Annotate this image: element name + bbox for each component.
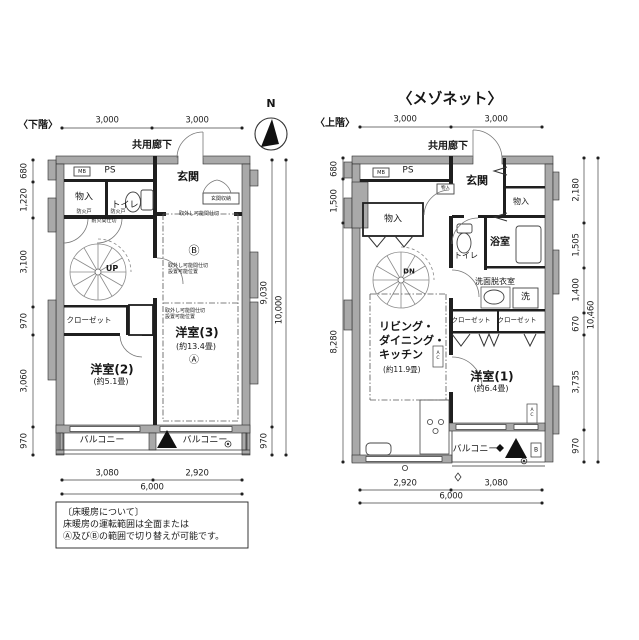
lower-heading: 〈下階〉 (18, 120, 58, 133)
lower-dim-top-2: 3,000 (185, 116, 208, 127)
lower-mark-a: Ⓐ (189, 355, 199, 368)
note-line-3: Ⓐ及びⒷの範囲で切り替えが可能です。 (63, 529, 224, 542)
upper-balcony-label: バルコニー (453, 444, 498, 455)
upper-room1-label: 洋室(1) (470, 370, 513, 385)
upper-dim-left-1: 680 (330, 161, 341, 177)
lower-closet-label: クローゼット (67, 315, 112, 324)
compass-north-label: N (266, 97, 275, 111)
upper-dn-label: DN (403, 268, 415, 277)
upper-mb-label: MB (377, 169, 385, 175)
lower-dim-top-1: 3,000 (95, 116, 118, 127)
upper-dim-right-5: 3,735 (572, 370, 583, 393)
lower-removable-note-2: 取外し可能間仕切 設置可能位置 (165, 308, 205, 321)
lower-dim-right-3: 10,000 (275, 296, 286, 325)
lower-dim-left-5: 3,060 (20, 369, 31, 392)
upper-entrance-label: 玄関 (466, 174, 488, 188)
lower-dim-left-6: 970 (20, 433, 31, 449)
lower-dim-right-1: 9,030 (260, 281, 271, 304)
upper-ldk-label: リビング・ ダイニング・ キッチン (379, 320, 445, 362)
lower-mb-label: MB (78, 168, 86, 174)
compass (255, 118, 287, 150)
lower-dim-right-2: 970 (260, 433, 271, 449)
lower-corridor-label: 共用廊下 (132, 140, 172, 153)
lower-balcony-right-label: バルコニー (183, 435, 228, 446)
upper-washer-label: 洗 (521, 292, 530, 303)
upper-dim-left-2: 1,500 (330, 189, 341, 212)
upper-dim-left-3: 8,280 (330, 330, 341, 353)
upper-toilet-label: トイレ (454, 251, 478, 261)
lower-ps-label: PS (104, 165, 115, 176)
floorplan-page: 〈メゾネット〉 N 〔床暖房について〕 床暖房の運転範囲は全面または Ⓐ及びⒷの… (0, 0, 639, 640)
upper-ac1-label: A C (436, 351, 439, 361)
lower-fire-partition-label: 耐火間仕切 (91, 218, 116, 224)
lower-removable-partition-label: 取外し可能間仕切 (179, 211, 219, 217)
lower-dim-bottom-total: 6,000 (140, 483, 163, 494)
lower-balcony-left-label: バルコニー (80, 435, 125, 446)
upper-dim-bottom-1: 2,920 (393, 479, 416, 490)
upper-stairs (373, 247, 434, 308)
upper-ac2-label: A C (530, 408, 533, 418)
upper-dim-bottom-total: 6,000 (439, 492, 462, 503)
lower-up-label: UP (106, 264, 118, 274)
upper-closet1-label: クローゼット (452, 316, 491, 324)
upper-dim-right-6: 970 (572, 438, 583, 454)
upper-dim-right-3: 1,400 (572, 278, 583, 301)
upper-storage-right-label: 物入 (513, 197, 529, 207)
upper-dim-top-1: 3,000 (393, 115, 416, 126)
upper-dim-right-1: 2,180 (572, 178, 583, 201)
upper-ldk-size: (約11.9畳) (383, 365, 421, 374)
lower-room2-size: (約5.1畳) (94, 377, 129, 387)
upper-dim-right-total: 10,460 (587, 301, 598, 330)
page-title: 〈メゾネット〉 (397, 90, 502, 109)
lower-room3-size: (約13.4畳) (176, 342, 216, 352)
lower-mark-b: Ⓑ (189, 244, 200, 258)
lower-entrance-storage-label: 玄関収納 (211, 195, 231, 201)
upper-room1-size: (約6.4畳) (474, 384, 509, 394)
lower-dim-left-2: 1,220 (20, 188, 31, 211)
upper-bath-label: 浴室 (490, 237, 510, 250)
lower-dim-bottom-2: 2,920 (185, 469, 208, 480)
lower-dim-left-4: 970 (20, 313, 31, 329)
lower-removable-note-1: 取外し可能間仕切 設置可能位置 (168, 263, 208, 276)
upper-storage-left-label: 物入 (384, 214, 402, 225)
lower-room3-label: 洋室(3) (175, 326, 218, 341)
upper-heading: 〈上階〉 (315, 118, 355, 131)
upper-closet2-label: クローゼット (498, 316, 537, 324)
upper-b-box-label: B (534, 446, 538, 454)
lower-dim-left-1: 680 (20, 163, 31, 179)
upper-washroom-label: 洗面脱衣室 (475, 277, 515, 287)
upper-dim-bottom-2: 3,080 (484, 479, 507, 490)
upper-dim-top-2: 3,000 (484, 115, 507, 126)
lower-dim-left-3: 3,100 (20, 250, 31, 273)
lower-fire-door-2-label: 防火戸 (110, 209, 125, 215)
lower-fire-door-1-label: 防火戸 (76, 209, 91, 215)
upper-ps-label: PS (402, 165, 413, 176)
lower-room2-label: 洋室(2) (90, 363, 133, 378)
upper-dim-right-2: 1,505 (572, 233, 583, 256)
lower-stairs (70, 239, 131, 300)
lower-entrance-label: 玄関 (177, 170, 199, 184)
lower-storage-label: 物入 (75, 192, 93, 203)
upper-corridor-label: 共用廊下 (428, 141, 468, 154)
lower-dim-bottom-1: 3,080 (95, 469, 118, 480)
upper-storage-small-label: 物入 (441, 186, 450, 192)
upper-dim-right-4: 670 (572, 316, 583, 332)
